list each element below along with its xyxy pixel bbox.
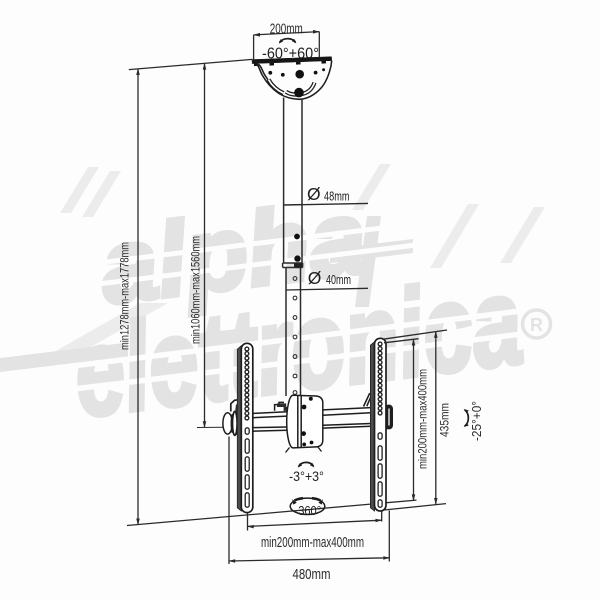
svg-text:min200mm-max400mm: min200mm-max400mm — [415, 369, 429, 469]
svg-text:48mm: 48mm — [324, 188, 350, 203]
svg-text:Ø: Ø — [308, 268, 322, 288]
svg-text:40mm: 40mm — [326, 272, 351, 287]
svg-text:R: R — [530, 315, 543, 335]
svg-text:200mm: 200mm — [270, 22, 303, 38]
svg-text:min200mm-max400mm: min200mm-max400mm — [261, 534, 364, 551]
svg-text:min1060mm-max1560mm: min1060mm-max1560mm — [188, 236, 202, 344]
svg-text:360°: 360° — [298, 504, 321, 518]
svg-text:min1278mm-max1778mm: min1278mm-max1778mm — [117, 242, 131, 350]
svg-text:435mm: 435mm — [437, 403, 451, 437]
svg-text:480mm: 480mm — [293, 566, 331, 583]
svg-text:-25°+0°: -25°+0° — [470, 401, 484, 441]
svg-text:-3°+3°: -3°+3° — [289, 468, 324, 484]
svg-text:Ø: Ø — [307, 184, 321, 204]
